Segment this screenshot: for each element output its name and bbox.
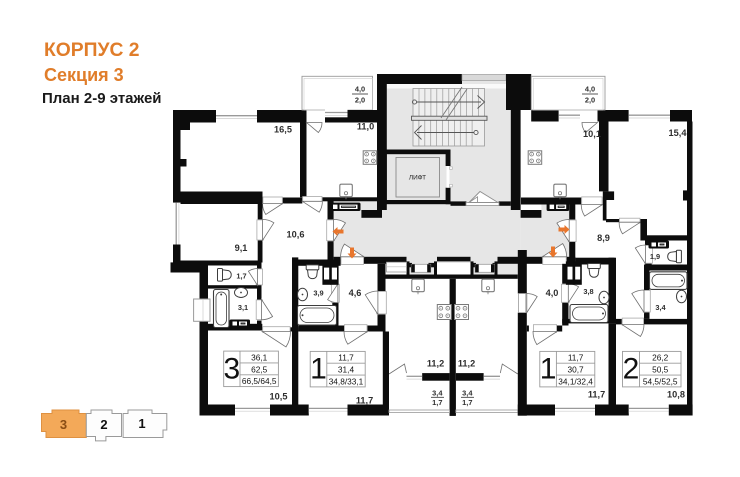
svg-text:9,1: 9,1 <box>235 243 248 253</box>
svg-text:36,1: 36,1 <box>251 352 268 362</box>
svg-text:3,8: 3,8 <box>583 287 593 296</box>
svg-text:4,0: 4,0 <box>546 288 559 298</box>
svg-text:10,5: 10,5 <box>270 392 288 402</box>
svg-text:3,9: 3,9 <box>313 289 323 298</box>
svg-text:11,2: 11,2 <box>427 359 444 369</box>
svg-text:11,2: 11,2 <box>458 359 475 369</box>
svg-text:15,4: 15,4 <box>669 128 688 138</box>
svg-text:3,1: 3,1 <box>238 303 248 312</box>
svg-text:3,4: 3,4 <box>432 388 443 397</box>
svg-text:16,5: 16,5 <box>274 125 292 135</box>
svg-text:8,9: 8,9 <box>597 233 610 243</box>
svg-text:4,6: 4,6 <box>349 288 362 298</box>
svg-text:2: 2 <box>100 417 107 432</box>
svg-text:34,8/33,1: 34,8/33,1 <box>329 377 364 387</box>
svg-text:План 2-9 этажей: План 2-9 этажей <box>42 90 162 107</box>
svg-text:11,7: 11,7 <box>356 396 373 406</box>
svg-text:54,5/52,5: 54,5/52,5 <box>643 377 678 387</box>
svg-text:3,4: 3,4 <box>462 388 473 397</box>
svg-text:11,0: 11,0 <box>357 122 374 132</box>
svg-text:2: 2 <box>623 353 640 386</box>
svg-text:66,5/64,5: 66,5/64,5 <box>242 376 277 386</box>
svg-text:1: 1 <box>138 416 145 431</box>
svg-text:34,1/32,4: 34,1/32,4 <box>558 377 593 387</box>
svg-text:3,4: 3,4 <box>655 303 666 312</box>
svg-text:2,0: 2,0 <box>355 96 365 105</box>
svg-text:1: 1 <box>540 353 557 386</box>
svg-text:1,7: 1,7 <box>432 398 442 407</box>
svg-text:4,0: 4,0 <box>355 85 365 94</box>
svg-text:31,4: 31,4 <box>338 365 355 375</box>
svg-text:11,7: 11,7 <box>338 353 354 363</box>
svg-text:ЛИФТ: ЛИФТ <box>409 175 426 182</box>
svg-text:50,5: 50,5 <box>652 365 669 375</box>
svg-text:62,5: 62,5 <box>251 364 268 374</box>
svg-text:Секция 3: Секция 3 <box>44 65 124 85</box>
svg-text:10,1: 10,1 <box>583 129 601 139</box>
svg-text:3: 3 <box>223 352 240 385</box>
svg-text:26,2: 26,2 <box>652 353 669 363</box>
svg-text:11,7: 11,7 <box>568 353 584 363</box>
svg-text:КОРПУС 2: КОРПУС 2 <box>44 40 139 61</box>
svg-text:3: 3 <box>60 417 67 432</box>
svg-text:1,7: 1,7 <box>236 272 246 281</box>
svg-text:4,0: 4,0 <box>585 85 595 94</box>
svg-text:1,7: 1,7 <box>462 398 472 407</box>
svg-text:30,7: 30,7 <box>568 365 585 375</box>
svg-text:10,8: 10,8 <box>667 390 685 400</box>
svg-text:1,9: 1,9 <box>650 252 660 261</box>
svg-text:11,7: 11,7 <box>588 390 605 400</box>
svg-text:10,6: 10,6 <box>287 230 305 240</box>
svg-text:2,0: 2,0 <box>585 96 595 105</box>
svg-text:1: 1 <box>310 353 327 386</box>
